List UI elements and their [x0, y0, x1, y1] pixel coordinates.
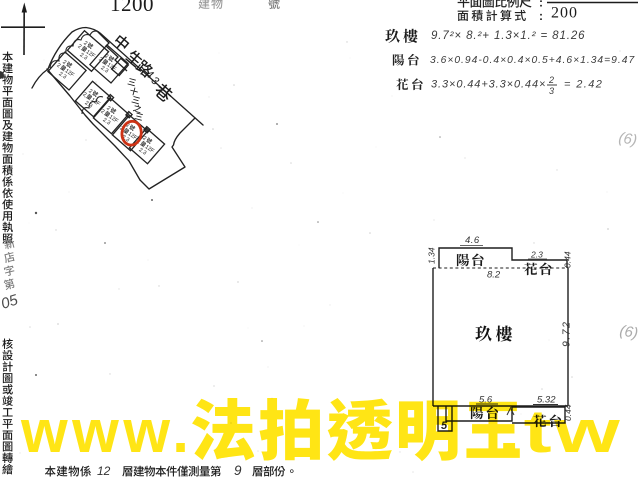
svg-text:= 2.42: = 2.42	[564, 79, 603, 91]
svg-text:4.6: 4.6	[465, 235, 480, 246]
svg-text:3: 3	[549, 86, 554, 96]
svg-text:0.44: 0.44	[563, 251, 573, 268]
svg-text:.tw: .tw	[498, 399, 623, 466]
svg-text:9.72: 9.72	[561, 321, 573, 347]
svg-text:8.2: 8.2	[487, 270, 501, 281]
svg-text:1200: 1200	[110, 0, 154, 16]
svg-text:200: 200	[551, 5, 578, 22]
svg-text:2.3: 2.3	[530, 250, 543, 260]
svg-text:www.: www.	[20, 398, 193, 465]
svg-text:3.6×0.94-0.4×0.4×0.5+4.6×1.34=: 3.6×0.94-0.4×0.4×0.5+4.6×1.34=9.47	[430, 55, 635, 66]
svg-text:9: 9	[234, 463, 242, 478]
svg-text:(6): (6)	[617, 129, 638, 149]
svg-text:(6): (6)	[618, 322, 639, 342]
svg-text:9.7²× 8.²+ 1.3×1.² = 81.26: 9.7²× 8.²+ 1.3×1.² = 81.26	[431, 30, 585, 42]
svg-text:12: 12	[97, 464, 111, 478]
svg-text:3.3×0.44+3.3×0.44×: 3.3×0.44+3.3×0.44×	[431, 79, 546, 91]
svg-text::: :	[539, 9, 543, 23]
svg-text:1.34: 1.34	[427, 247, 437, 264]
svg-text:2: 2	[548, 75, 554, 85]
